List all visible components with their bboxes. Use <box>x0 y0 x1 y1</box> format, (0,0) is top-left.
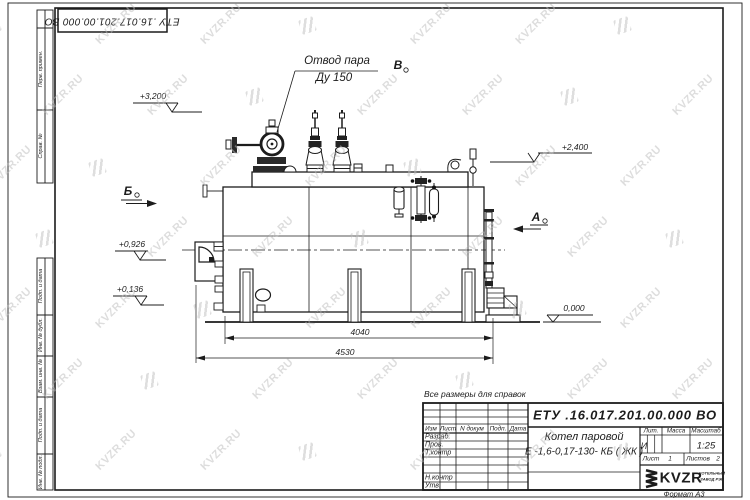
massa-header: Масса <box>667 428 686 435</box>
elevation-0000: 0,000 <box>563 303 584 313</box>
pump-assembly <box>486 288 520 322</box>
kvzr-logo-text: KVZR <box>660 470 703 487</box>
callout-steam-line2: Ду 150 <box>316 72 352 84</box>
margin-label-podp2: Подп. и дата <box>38 408 44 442</box>
view-letter-b-left: Б <box>124 184 133 198</box>
lit-value: И <box>641 441 647 451</box>
sheet-label: Лист <box>643 456 660 463</box>
steam-valve <box>226 120 291 172</box>
scale-value: 1:25 <box>697 441 716 452</box>
view-letter-b-top: В <box>394 58 403 72</box>
margin-label-sprav: Справ. № <box>38 134 44 159</box>
dimension-4040 <box>225 316 493 364</box>
sheet-value: 1 <box>668 456 672 463</box>
margin-label-inv-podl: Инв. № подл. <box>38 455 44 489</box>
drawing-sheet: ЕТУ .16.017.201.00.000 ВО Перв. примен. … <box>0 0 750 500</box>
col-data: Дата <box>510 426 527 433</box>
elevation-2400: +2,400 <box>562 142 588 152</box>
safety-valve-1 <box>306 110 324 172</box>
lit-header: Лит. <box>644 428 659 435</box>
row-utv: Утв. <box>425 483 441 490</box>
product-name-line2: Е -1,6-0,17-130- КБ ( ЖК ) <box>525 447 643 458</box>
boiler-steam-header <box>252 172 468 187</box>
margin-label-vzam: Взам. инв. № <box>38 359 44 393</box>
row-razrab: Разраб. <box>425 434 450 441</box>
sheets-value: 2 <box>716 456 720 463</box>
elevation-0136: +0,136 <box>117 284 143 294</box>
reference-note: Все размеры для справок <box>424 389 526 399</box>
product-name-line1: Котел паровой <box>545 431 624 443</box>
col-list: Лист <box>440 426 456 433</box>
kvzr-logo-sub1: КОТЕЛЬНЫЙ <box>699 471 725 476</box>
col-izm: Изм <box>425 426 437 433</box>
drawing-geometry <box>0 0 750 500</box>
kvzr-logo-spring <box>646 470 657 487</box>
row-nkontr: Н.контр <box>425 474 453 481</box>
dim-4530: 4530 <box>336 347 355 357</box>
elevation-0926: +0,926 <box>119 239 145 249</box>
safety-valve-2 <box>333 110 351 172</box>
col-n-dokum: N докум <box>460 426 484 433</box>
sheets-label: Листов <box>686 456 710 463</box>
row-prov: Пров. <box>425 442 443 449</box>
margin-label-inv-dubl: Инв. № дубл. <box>38 318 44 352</box>
elevation-3200: +3,200 <box>140 91 166 101</box>
margin-label-perv: Перв. примен. <box>38 51 44 88</box>
dim-4040: 4040 <box>351 327 370 337</box>
col-podp: Подп. <box>490 426 507 433</box>
callout-steam-line1: Отвод пара <box>304 55 370 67</box>
masshtab-header: Масштаб <box>691 428 720 435</box>
kvzr-logo-sub2: ЗАВОД РЭП <box>700 477 724 482</box>
format-label: Формат А3 <box>663 490 704 499</box>
downcomer-pipe <box>484 209 494 288</box>
margin-label-podp1: Подп. и дата <box>38 269 44 303</box>
doc-number: ЕТУ .16.017.201.00.000 ВО <box>533 408 717 423</box>
row-tkontr: Т.контр <box>425 450 451 457</box>
view-letter-a: А <box>532 210 541 224</box>
top-stamp-number: ЕТУ .16.017.201.00.000 ВО <box>44 15 179 26</box>
